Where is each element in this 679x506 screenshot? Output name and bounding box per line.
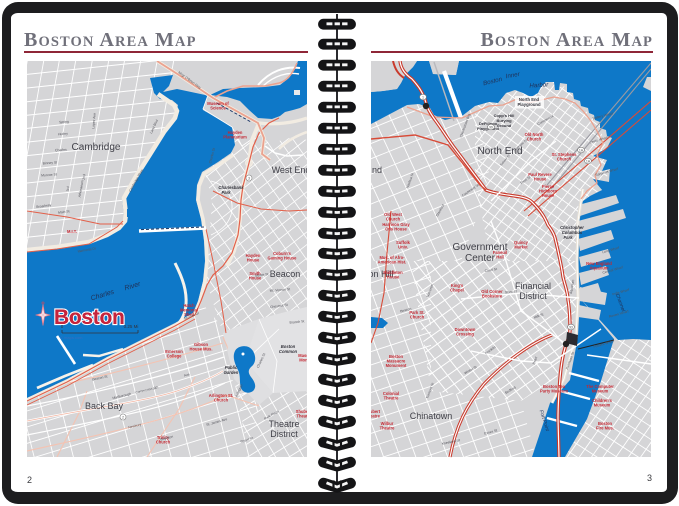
svg-text:West End: West End <box>272 165 307 175</box>
svg-text:Science: Science <box>210 106 226 111</box>
svg-text:Park: Park <box>221 190 231 195</box>
svg-text:© maps.com: © maps.com <box>60 335 83 340</box>
svg-text:House: House <box>534 177 547 182</box>
svg-text:Univ.: Univ. <box>398 245 408 250</box>
svg-text:Gaming House: Gaming House <box>268 256 298 261</box>
svg-text:District: District <box>270 429 298 439</box>
svg-text:1: 1 <box>422 95 424 99</box>
svg-text:Theatre: Theatre <box>380 426 396 431</box>
svg-text:Church: Church <box>386 217 401 222</box>
svg-text:Planetarium: Planetarium <box>223 135 247 140</box>
svg-text:Chinatown: Chinatown <box>410 411 453 421</box>
svg-text:Church: Church <box>557 157 572 162</box>
svg-text:93: 93 <box>569 325 573 329</box>
svg-text:Church: Church <box>410 315 425 320</box>
svg-text:Back Bay: Back Bay <box>85 401 124 411</box>
svg-text:2: 2 <box>122 416 124 420</box>
svg-text:Market: Market <box>514 245 528 250</box>
svg-text:Museum: Museum <box>592 389 609 394</box>
svg-text:Theatre: Theatre <box>384 396 400 401</box>
svg-text:0.25 Mi: 0.25 Mi <box>124 324 139 329</box>
svg-text:2nd: 2nd <box>82 174 86 180</box>
svg-text:Monument: Monument <box>386 363 407 368</box>
svg-text:Hurley: Hurley <box>58 132 68 137</box>
svg-text:Boston: Boston <box>54 306 125 329</box>
svg-text:Center: Center <box>465 253 496 264</box>
svg-text:Hall: Hall <box>496 255 504 260</box>
svg-text:Theatre: Theatre <box>268 419 299 429</box>
svg-text:Theat: Theat <box>297 414 307 419</box>
svg-text:Museum: Museum <box>594 403 611 408</box>
svg-text:Garden: Garden <box>224 370 239 375</box>
svg-text:3: 3 <box>248 177 250 181</box>
svg-text:Church: Church <box>214 398 229 403</box>
svg-text:Playground: Playground <box>517 102 540 107</box>
svg-text:Harbor: Harbor <box>529 81 549 89</box>
svg-text:House: House <box>247 258 260 263</box>
svg-text:Church: Church <box>527 137 542 142</box>
svg-text:House: House <box>387 275 400 280</box>
svg-text:Spring: Spring <box>59 120 69 125</box>
svg-text:Crossing: Crossing <box>456 332 474 337</box>
svg-text:Fire Mus.: Fire Mus. <box>596 426 614 431</box>
svg-text:Cambridge: Cambridge <box>72 142 121 153</box>
svg-text:Otis House: Otis House <box>385 227 407 232</box>
svg-text:College: College <box>167 354 183 359</box>
svg-text:M.I.T.: M.I.T. <box>67 229 77 234</box>
svg-text:Mon.: Mon. <box>299 358 307 363</box>
svg-text:nd: nd <box>372 165 382 175</box>
svg-text:House Mus.: House Mus. <box>190 347 213 352</box>
svg-text:3rd: 3rd <box>66 186 70 191</box>
svg-text:99: 99 <box>489 125 493 129</box>
svg-text:Party Museum: Party Museum <box>540 389 568 394</box>
svg-text:Beacon: Beacon <box>270 269 301 279</box>
svg-text:Chapel: Chapel <box>450 288 464 293</box>
svg-text:American Hist.: American Hist. <box>378 260 407 265</box>
svg-text:Financial: Financial <box>515 281 551 291</box>
svg-text:Charles: Charles <box>55 148 67 153</box>
svg-text:eatre: eatre <box>371 414 381 419</box>
svg-text:District: District <box>519 291 547 301</box>
svg-text:Bookstore: Bookstore <box>482 294 503 299</box>
svg-text:Park: Park <box>563 235 573 240</box>
svg-text:House: House <box>542 193 555 198</box>
svg-text:Ground: Ground <box>497 123 512 128</box>
svg-text:Common: Common <box>279 349 298 354</box>
